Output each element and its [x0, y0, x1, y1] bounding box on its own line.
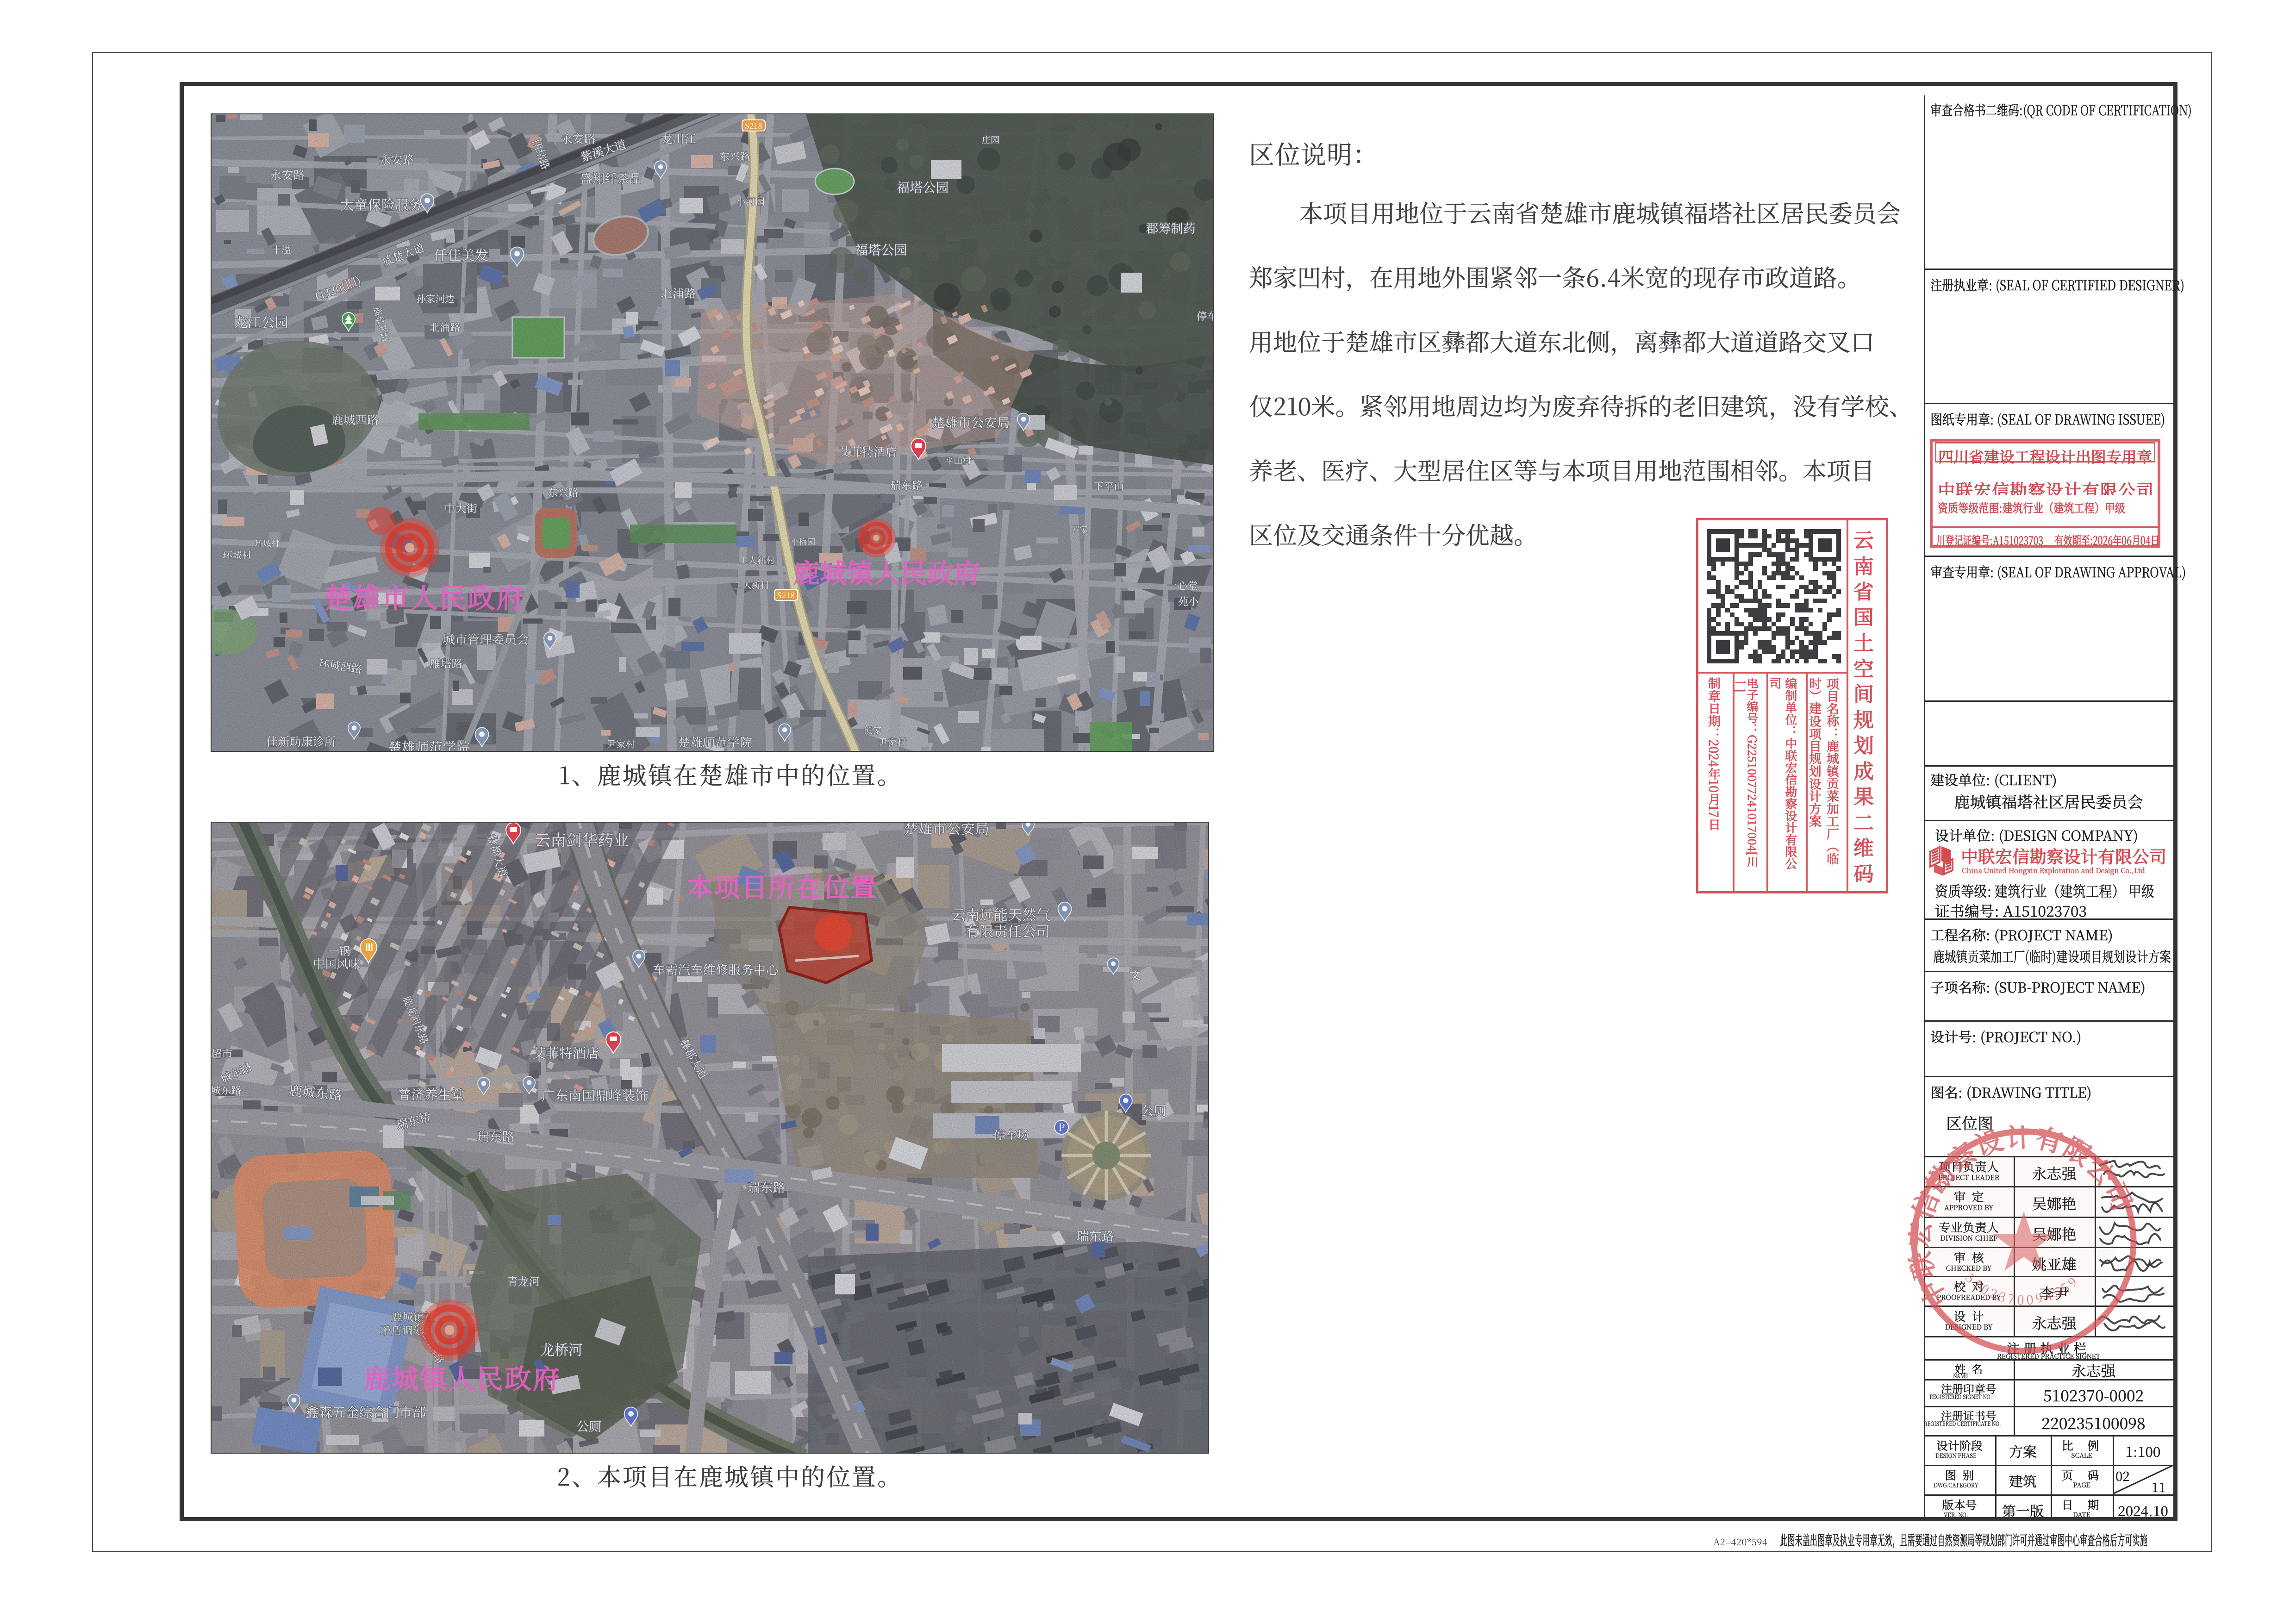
svg-text:中联宏信勘察设计有限公司: 中联宏信勘察设计有限公司 [1961, 843, 2166, 868]
svg-text:China United Hongxin Explorati: China United Hongxin Exploration and Des… [1962, 866, 2146, 875]
